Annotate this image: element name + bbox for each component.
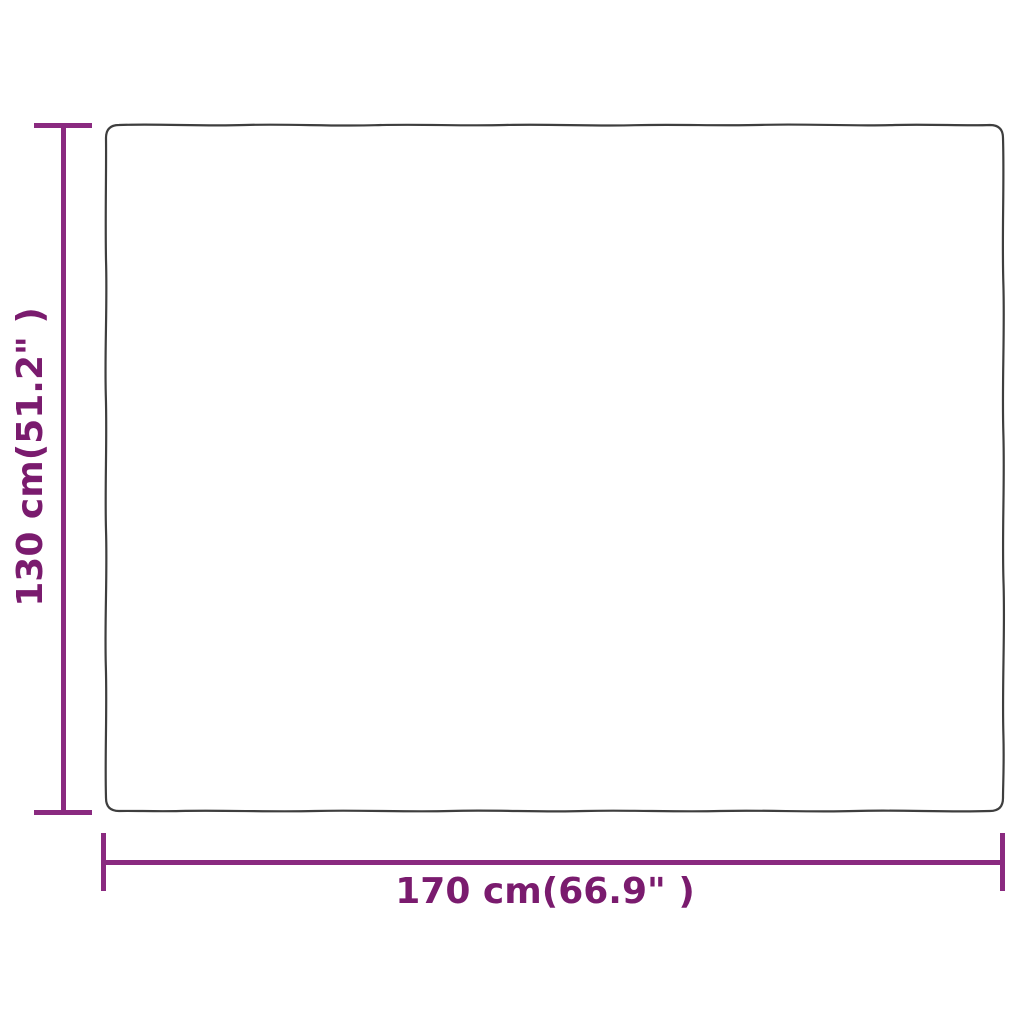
width-dimension-line	[103, 860, 1003, 865]
width-dimension-right-cap	[1000, 833, 1005, 891]
dimension-diagram: 130 cm(51.2" ) 170 cm(66.9" )	[0, 0, 1024, 1024]
height-dimension-bottom-cap	[34, 810, 92, 815]
height-dimension-label: 130 cm(51.2" )	[11, 257, 51, 657]
blanket-outline-path	[105, 124, 1003, 811]
height-dimension-line	[61, 123, 66, 815]
width-dimension-label: 170 cm(66.9" )	[345, 872, 745, 912]
